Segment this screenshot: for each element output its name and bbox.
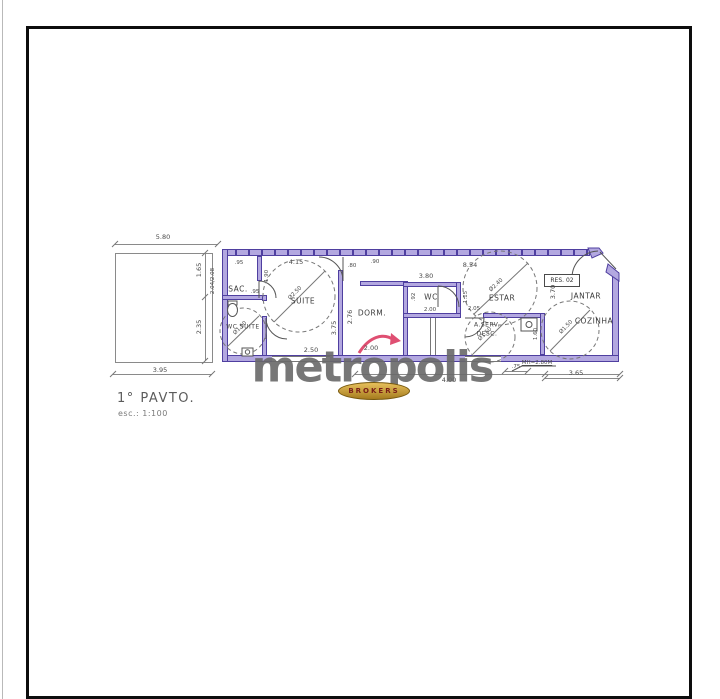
toilet-bowl-icon bbox=[228, 304, 238, 317]
room-label-suite: SUITE bbox=[291, 297, 315, 306]
dim-suite-width: 4.15 bbox=[289, 258, 303, 266]
plan-scale: esc.: 1:100 bbox=[118, 409, 168, 418]
door-sac bbox=[259, 281, 276, 298]
circle-label-cozinha: Ø1.50 bbox=[558, 318, 575, 335]
room-label-jantar: JANTAR bbox=[571, 292, 601, 301]
dim-suite-depth: 3.75 bbox=[330, 321, 338, 335]
wall-chamfer-lower bbox=[606, 264, 619, 281]
room-label-dorm: DORM. bbox=[358, 309, 386, 318]
brokers-badge: BROKERS bbox=[338, 382, 410, 400]
room-label-sac: SAC. bbox=[228, 285, 248, 294]
room-label-estar: ESTAR bbox=[489, 294, 515, 303]
dim-suite-entry: .95 bbox=[251, 289, 260, 295]
plan-title: 1° PAVTO. bbox=[117, 391, 195, 406]
room-label-desc: DESC. bbox=[477, 331, 498, 338]
dim-left-lower: 2.35 bbox=[195, 320, 203, 334]
dim-wc-top: 3.80 bbox=[419, 272, 433, 280]
dim-wc-left: .92 bbox=[411, 293, 417, 302]
dim-estar-top: 8.54 bbox=[463, 261, 477, 269]
floorplan-page: Ø2.50 Ø2.40 Ø1.50 Ø1.50 Ø1.50 SAC. WC SU… bbox=[0, 0, 720, 699]
dim-left-upper: 1.65 bbox=[195, 263, 203, 277]
dim-dorm-depth: 2.76 bbox=[346, 310, 354, 324]
room-label-cozinha: COZINHA bbox=[575, 317, 613, 326]
room-label-aserv: A.SERV. bbox=[474, 322, 500, 329]
room-label-wc-suite: WC SUITE bbox=[226, 324, 259, 331]
door-suite-hall bbox=[319, 257, 343, 281]
circle-label-estar: Ø2.40 bbox=[488, 276, 505, 293]
dim-top-width: 5.80 bbox=[156, 233, 170, 241]
dim-estar-bottom: 2.05 bbox=[468, 306, 480, 312]
dim-jantar-depth: 3.70 bbox=[549, 285, 557, 299]
laundry-tank-drain-icon bbox=[526, 322, 532, 328]
dim-aserv-right: 1.60 bbox=[533, 328, 539, 340]
sink-drain-icon bbox=[245, 350, 249, 354]
circle-diagonal-estar bbox=[474, 263, 528, 314]
door-wc bbox=[438, 286, 459, 307]
dim-sac-width: .95 bbox=[235, 260, 244, 266]
dim-hall-b: .90 bbox=[371, 259, 380, 265]
dim-wc-width: 2.00 bbox=[424, 307, 436, 313]
dim-sac-depth: 1.90 bbox=[264, 270, 270, 282]
dim-bottom-left: 3.95 bbox=[153, 366, 167, 374]
dim-bottom-step: .75 bbox=[512, 364, 521, 370]
dim-bottom-right: 3.65 bbox=[569, 369, 583, 377]
dim-left-inner: 2.04/2.08 bbox=[210, 268, 216, 294]
room-label-wc: WC bbox=[424, 293, 438, 302]
ceiling-height-note: MH=2.80M bbox=[522, 360, 552, 366]
dim-wc-right: 1.15 bbox=[463, 291, 469, 303]
dim-hall-a: .80 bbox=[348, 263, 357, 269]
